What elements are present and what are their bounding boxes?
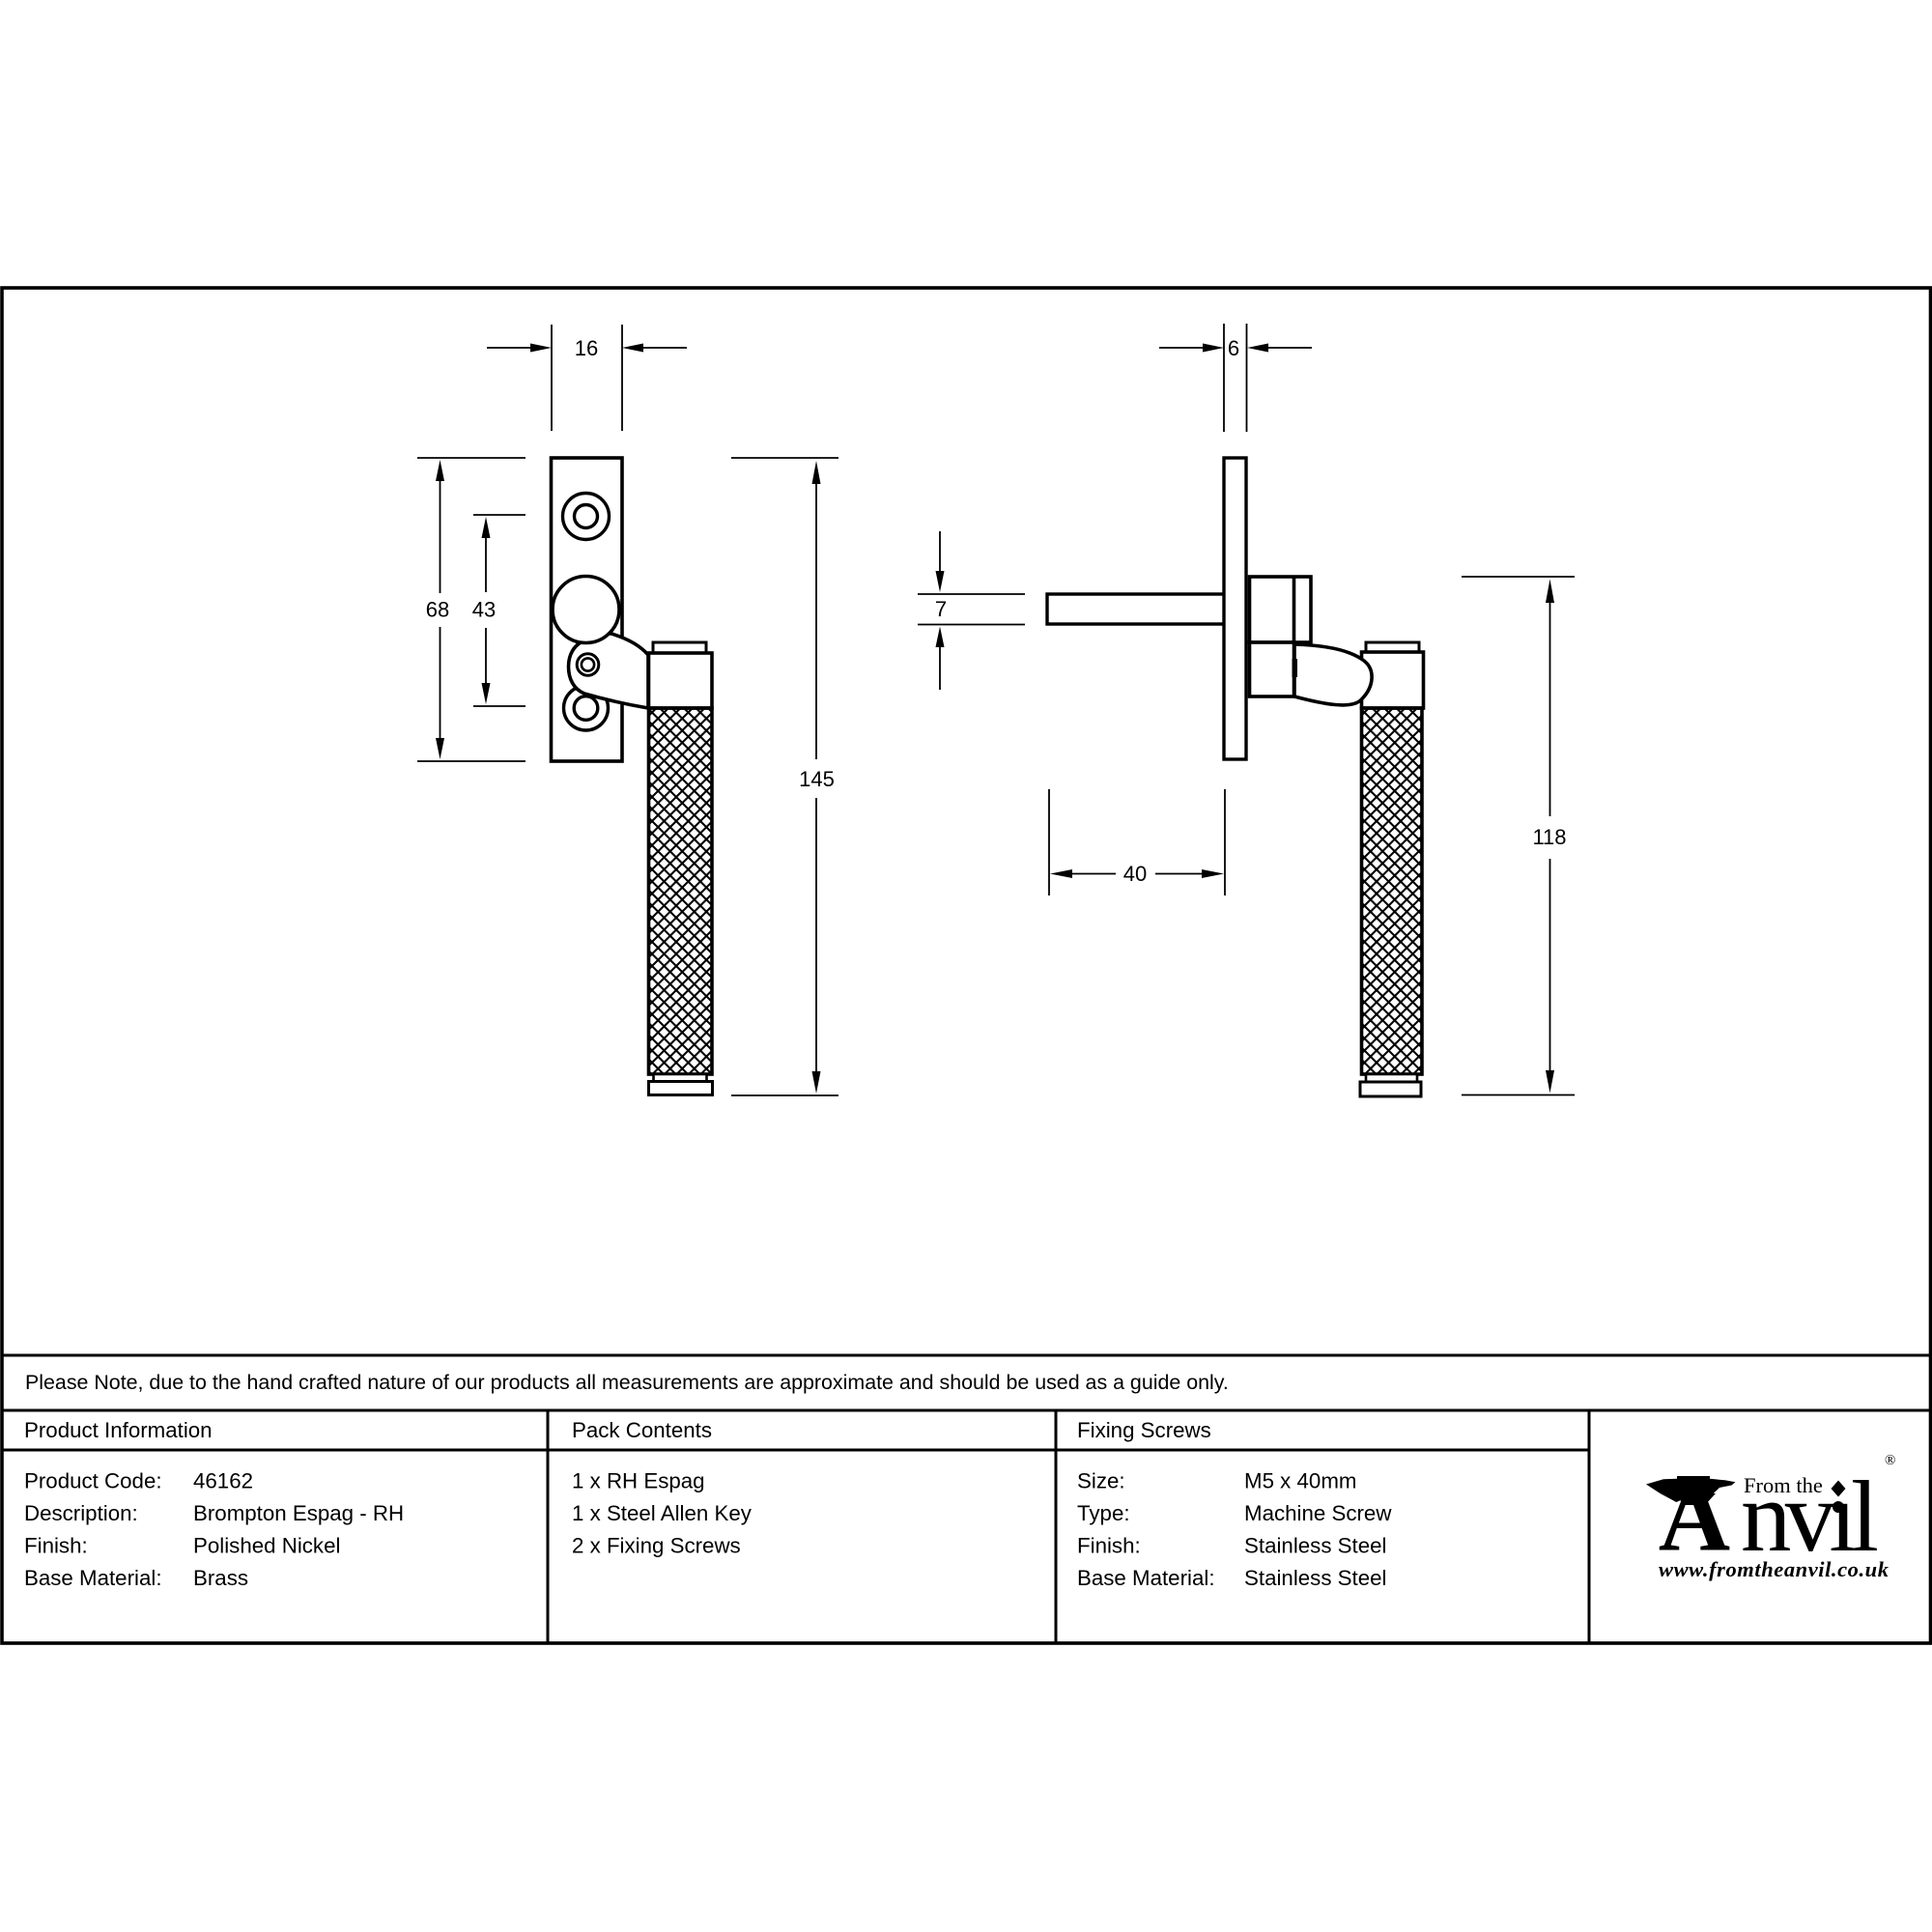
svg-text:46162: 46162 — [193, 1469, 253, 1493]
svg-text:Base Material:: Base Material: — [1077, 1566, 1215, 1590]
svg-text:Brass: Brass — [193, 1566, 248, 1590]
svg-text:1 x RH Espag: 1 x RH Espag — [572, 1469, 705, 1493]
svg-text:7: 7 — [935, 597, 947, 621]
svg-text:Please Note, due to the hand c: Please Note, due to the hand crafted nat… — [25, 1371, 1229, 1394]
svg-text:Description:: Description: — [24, 1501, 138, 1525]
svg-text:Fixing Screws: Fixing Screws — [1077, 1418, 1211, 1442]
svg-text:Finish:: Finish: — [1077, 1534, 1141, 1558]
svg-text:Brompton Espag - RH: Brompton Espag - RH — [193, 1501, 404, 1525]
svg-text:43: 43 — [472, 598, 496, 622]
svg-text:nvıl: nvıl — [1741, 1460, 1879, 1573]
svg-text:68: 68 — [426, 598, 449, 622]
svg-text:www.fromtheanvil.co.uk: www.fromtheanvil.co.uk — [1659, 1557, 1889, 1581]
svg-text:40: 40 — [1123, 862, 1147, 886]
svg-text:®: ® — [1885, 1453, 1895, 1468]
svg-text:Pack Contents: Pack Contents — [572, 1418, 712, 1442]
svg-text:M5 x 40mm: M5 x 40mm — [1244, 1469, 1356, 1493]
svg-text:2 x Fixing Screws: 2 x Fixing Screws — [572, 1534, 741, 1558]
svg-text:Base Material:: Base Material: — [24, 1566, 162, 1590]
svg-text:Size:: Size: — [1077, 1469, 1125, 1493]
svg-text:6: 6 — [1228, 336, 1239, 360]
svg-text:16: 16 — [575, 336, 598, 360]
svg-text:Finish:: Finish: — [24, 1534, 88, 1558]
svg-text:118: 118 — [1532, 825, 1566, 849]
svg-text:Type:: Type: — [1077, 1501, 1130, 1525]
svg-text:Product Information: Product Information — [24, 1418, 213, 1442]
svg-text:1 x Steel Allen Key: 1 x Steel Allen Key — [572, 1501, 753, 1525]
svg-text:Stainless Steel: Stainless Steel — [1244, 1534, 1387, 1558]
svg-text:Polished Nickel: Polished Nickel — [193, 1534, 340, 1558]
svg-text:Stainless Steel: Stainless Steel — [1244, 1566, 1387, 1590]
svg-text:Machine Screw: Machine Screw — [1244, 1501, 1392, 1525]
svg-text:Product Code:: Product Code: — [24, 1469, 162, 1493]
svg-text:145: 145 — [799, 767, 835, 791]
